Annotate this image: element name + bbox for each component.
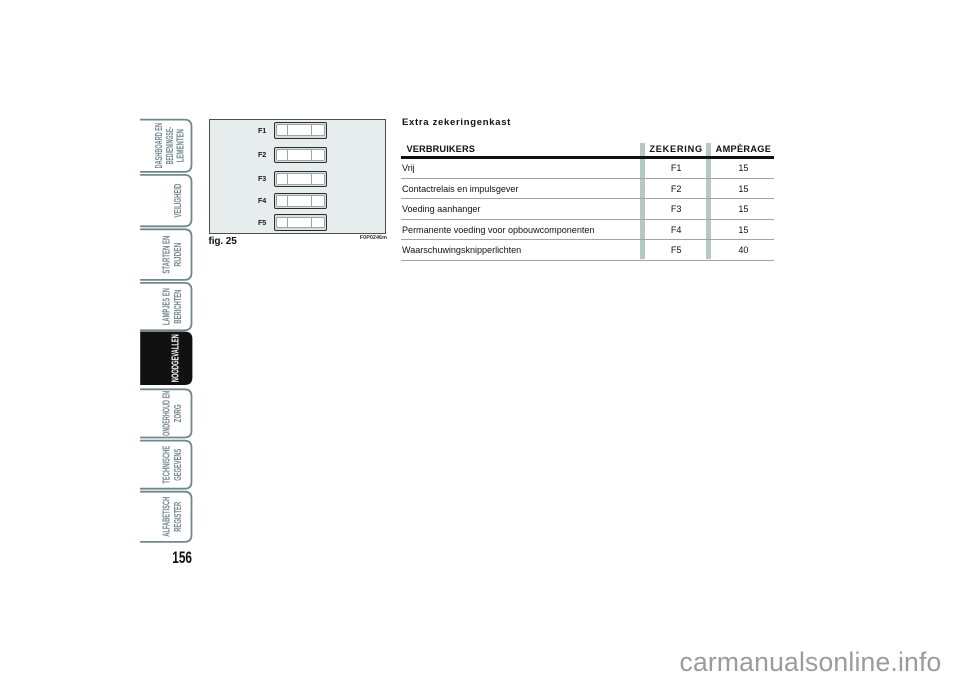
svg-text:NOODGEVALLEN: NOODGEVALLEN bbox=[171, 334, 182, 382]
svg-text:LAMPJES EN: LAMPJES EN bbox=[162, 288, 173, 325]
svg-text:DASHBOARD EN: DASHBOARD EN bbox=[154, 123, 165, 168]
svg-text:RIJDEN: RIJDEN bbox=[173, 243, 184, 267]
svg-text:ONDERHOUD EN: ONDERHOUD EN bbox=[162, 391, 173, 436]
svg-text:BEDIENINGSE-: BEDIENINGSE- bbox=[165, 127, 176, 164]
svg-text:BERICHTEN: BERICHTEN bbox=[173, 290, 184, 324]
svg-text:GEGEVENS: GEGEVENS bbox=[173, 449, 184, 481]
svg-text:REGISTER: REGISTER bbox=[173, 501, 184, 531]
svg-text:ZORG: ZORG bbox=[173, 404, 184, 422]
svg-text:STARTEN EN: STARTEN EN bbox=[162, 236, 173, 274]
svg-text:ALFABETISCH: ALFABETISCH bbox=[162, 497, 173, 537]
svg-text:TECHNISCHE: TECHNISCHE bbox=[162, 446, 173, 484]
svg-text:LEMENTEN: LEMENTEN bbox=[175, 129, 186, 162]
svg-text:VEILIGHEID: VEILIGHEID bbox=[173, 184, 184, 218]
svg-text:156: 156 bbox=[172, 549, 192, 567]
